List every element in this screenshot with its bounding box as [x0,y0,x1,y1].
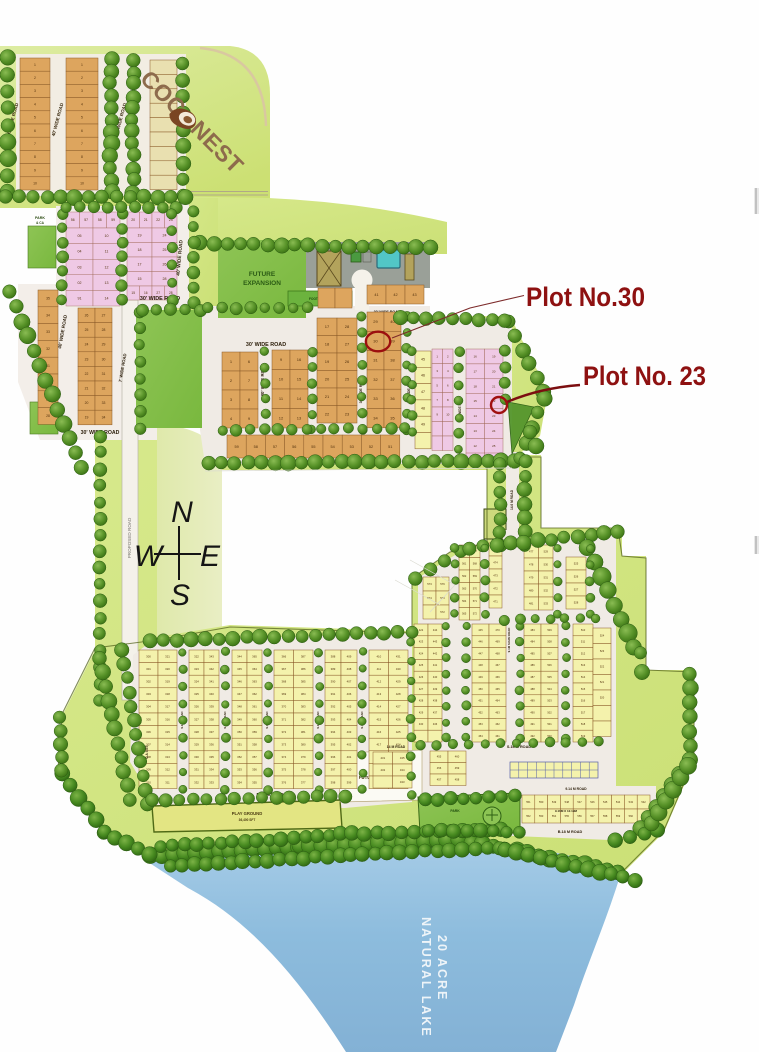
svg-text:428: 428 [396,692,401,696]
svg-text:43: 43 [412,293,416,297]
svg-text:334: 334 [209,768,214,772]
svg-text:410: 410 [376,654,381,658]
svg-text:457: 457 [437,778,442,782]
svg-text:428: 428 [419,699,424,703]
svg-text:456: 456 [437,766,442,770]
svg-text:51: 51 [388,445,392,449]
svg-text:348: 348 [237,705,242,709]
svg-text:58: 58 [98,218,102,222]
svg-text:29: 29 [373,319,378,324]
svg-text:362: 362 [252,692,257,696]
svg-text:18: 18 [138,248,142,252]
svg-text:54: 54 [330,445,334,449]
svg-text:52: 52 [369,445,373,449]
svg-text:576: 576 [440,582,445,586]
svg-text:431: 431 [380,756,385,760]
svg-text:400: 400 [347,768,352,772]
svg-text:426: 426 [419,675,424,679]
svg-text:370: 370 [281,705,286,709]
svg-text:10: 10 [446,412,450,416]
svg-text:3: 3 [34,89,36,93]
svg-text:367: 367 [281,667,286,671]
svg-text:473: 473 [493,573,498,577]
svg-text:S: S [170,579,190,612]
svg-text:PROPOSED ROAD: PROPOSED ROAD [127,517,132,558]
svg-text:318: 318 [165,692,170,696]
svg-text:333: 333 [209,780,214,784]
svg-text:56: 56 [71,218,75,222]
svg-text:423: 423 [419,640,424,644]
svg-text:32: 32 [46,347,50,351]
svg-text:373: 373 [281,743,286,747]
svg-text:483: 483 [530,628,535,632]
svg-text:306: 306 [146,730,151,734]
svg-text:9.16M X 12.19M: 9.16M X 12.19M [555,809,578,813]
svg-text:300: 300 [146,654,151,658]
svg-text:479: 479 [529,575,534,579]
svg-text:32: 32 [373,377,378,382]
svg-text:20: 20 [85,401,89,405]
svg-text:403: 403 [347,730,352,734]
svg-text:459: 459 [455,766,460,770]
svg-text:516: 516 [581,699,586,703]
svg-text:474: 474 [493,560,498,564]
svg-text:347: 347 [237,692,242,696]
svg-text:425: 425 [419,663,424,667]
svg-text:406: 406 [347,692,352,696]
svg-text:380: 380 [301,743,306,747]
svg-text:22: 22 [85,372,89,376]
svg-text:313: 313 [165,755,170,759]
svg-text:36: 36 [390,396,395,401]
svg-text:413: 413 [376,692,381,696]
svg-text:530: 530 [544,562,549,566]
svg-text:327: 327 [194,717,199,721]
svg-text:361: 361 [252,705,257,709]
svg-text:351: 351 [237,743,242,747]
svg-text:19: 19 [138,234,142,238]
svg-text:470: 470 [495,628,500,632]
svg-text:14: 14 [297,396,302,401]
svg-text:478: 478 [529,562,534,566]
svg-text:329: 329 [194,743,199,747]
svg-text:343: 343 [209,654,214,658]
svg-text:469: 469 [495,640,500,644]
svg-text:392: 392 [331,705,336,709]
svg-text:507: 507 [547,651,552,655]
svg-text:555: 555 [565,814,570,818]
svg-text:382: 382 [301,717,306,721]
svg-text:Plot No. 23: Plot No. 23 [583,361,706,391]
svg-text:25: 25 [345,377,350,382]
svg-text:326: 326 [194,705,199,709]
svg-text:461: 461 [495,734,500,738]
svg-text:301: 301 [146,667,151,671]
svg-text:12: 12 [279,416,284,421]
svg-text:402: 402 [347,743,352,747]
svg-text:501: 501 [547,722,552,726]
svg-text:448: 448 [478,663,483,667]
svg-text:37: 37 [390,377,395,382]
svg-text:390: 390 [331,680,336,684]
svg-text:485: 485 [530,651,535,655]
svg-text:5: 5 [81,116,83,120]
svg-text:441: 441 [433,663,438,667]
svg-text:18: 18 [474,384,478,388]
svg-text:531: 531 [544,575,549,579]
svg-text:542: 542 [641,800,646,804]
svg-text:551: 551 [526,800,531,804]
svg-text:W: W [134,540,165,573]
svg-text:E: E [200,540,221,573]
svg-text:425: 425 [396,730,401,734]
svg-text:7: 7 [34,142,36,146]
svg-text:354: 354 [237,780,242,784]
svg-text:560: 560 [629,814,634,818]
svg-text:556: 556 [577,814,582,818]
svg-text:545: 545 [603,800,608,804]
svg-text:515: 515 [581,687,586,691]
svg-text:02: 02 [78,281,82,285]
svg-text:440: 440 [433,675,438,679]
svg-text:434: 434 [400,768,405,772]
svg-text:375: 375 [281,768,286,772]
svg-text:427: 427 [396,705,401,709]
svg-text:21: 21 [325,394,330,399]
svg-text:450: 450 [478,687,483,691]
svg-text:24: 24 [163,234,167,238]
svg-text:472: 472 [493,586,498,590]
svg-text:422: 422 [419,628,424,632]
svg-text:315: 315 [165,730,170,734]
svg-text:521: 521 [600,680,605,684]
svg-text:13: 13 [474,429,478,433]
svg-text:394: 394 [331,730,336,734]
svg-text:504: 504 [547,687,552,691]
svg-text:9: 9 [81,168,83,172]
svg-text:34: 34 [102,416,106,420]
svg-text:20: 20 [325,377,330,382]
svg-text:444: 444 [433,628,438,632]
svg-text:55: 55 [311,445,315,449]
svg-text:17: 17 [325,324,330,329]
svg-text:525: 525 [574,561,579,565]
svg-text:20: 20 [131,218,135,222]
svg-text:505: 505 [547,675,552,679]
svg-text:548: 548 [565,800,570,804]
svg-text:460: 460 [455,755,460,759]
svg-text:15: 15 [474,399,478,403]
svg-text:9.14 M ROAD: 9.14 M ROAD [565,787,587,791]
svg-text:492: 492 [530,734,535,738]
svg-text:342: 342 [209,667,214,671]
svg-text:26: 26 [163,263,167,267]
svg-text:550: 550 [539,800,544,804]
svg-text:22: 22 [325,412,330,417]
svg-text:31: 31 [373,358,378,363]
svg-text:455: 455 [437,755,442,759]
svg-text:13: 13 [297,416,302,421]
svg-text:360: 360 [252,717,257,721]
svg-text:523: 523 [600,649,605,653]
svg-text:EXPANSION: EXPANSION [243,280,281,287]
svg-text:23: 23 [492,414,496,418]
svg-text:558: 558 [603,814,608,818]
svg-text:312: 312 [165,768,170,772]
svg-text:429: 429 [419,710,424,714]
svg-text:522: 522 [600,665,605,669]
svg-text:15: 15 [131,291,135,295]
svg-text:56: 56 [292,445,296,449]
svg-text:34: 34 [46,313,50,317]
svg-text:17: 17 [474,369,478,373]
svg-text:353: 353 [237,768,242,772]
svg-text:2: 2 [34,76,36,80]
svg-text:21: 21 [85,387,89,391]
svg-text:365: 365 [252,654,257,658]
svg-text:404: 404 [347,717,352,721]
svg-text:25: 25 [492,444,496,448]
svg-text:17: 17 [138,263,142,267]
svg-text:19: 19 [492,355,496,359]
svg-text:357: 357 [252,755,257,759]
svg-text:45: 45 [421,357,425,361]
svg-text:336: 336 [209,743,214,747]
svg-text:407: 407 [347,680,352,684]
svg-text:NATURAL LAKE: NATURAL LAKE [419,917,433,1038]
svg-text:376: 376 [281,780,286,784]
svg-text:401: 401 [347,755,352,759]
svg-text:471: 471 [493,599,498,603]
svg-text:570: 570 [473,588,478,591]
svg-text:395: 395 [331,743,336,747]
svg-text:468: 468 [495,651,500,655]
svg-text:429: 429 [396,680,401,684]
svg-text:339: 339 [209,705,214,709]
svg-text:573: 573 [427,582,432,586]
svg-text:16: 16 [144,291,148,295]
svg-text:544: 544 [616,800,621,804]
svg-text:543: 543 [629,800,634,804]
svg-text:314: 314 [165,743,170,747]
svg-text:398: 398 [331,780,336,784]
svg-text:435: 435 [400,756,405,760]
svg-text:564: 564 [462,600,467,603]
svg-text:34: 34 [373,416,378,421]
svg-text:366: 366 [281,654,286,658]
svg-text:350: 350 [237,730,242,734]
svg-text:502: 502 [547,710,552,714]
svg-text:416: 416 [376,730,381,734]
svg-text:424: 424 [419,651,424,655]
svg-text:374: 374 [281,755,286,759]
svg-text:345: 345 [237,667,242,671]
svg-text:464: 464 [495,699,500,703]
svg-text:533: 533 [544,601,549,605]
svg-text:27: 27 [345,342,350,347]
svg-text:3: 3 [81,89,83,93]
svg-text:35: 35 [390,416,395,421]
svg-text:399: 399 [347,780,352,784]
svg-text:22: 22 [156,218,160,222]
svg-text:21: 21 [144,218,148,222]
svg-text:335: 335 [209,755,214,759]
svg-text:58: 58 [254,445,258,449]
svg-text:387: 387 [301,654,306,658]
svg-text:430: 430 [396,667,401,671]
svg-text:557: 557 [590,814,595,818]
svg-text:511: 511 [581,640,586,644]
svg-text:463: 463 [495,710,500,714]
svg-text:05: 05 [78,234,82,238]
svg-text:PLAY GROUND: PLAY GROUND [232,811,262,816]
svg-text:13: 13 [105,281,109,285]
svg-text:378: 378 [301,768,306,772]
svg-text:41: 41 [374,293,378,297]
svg-text:554: 554 [552,814,557,818]
svg-text:30: 30 [373,338,378,343]
svg-text:480: 480 [529,588,534,592]
svg-text:510: 510 [581,628,586,632]
svg-text:25: 25 [163,248,167,252]
svg-text:383: 383 [301,705,306,709]
svg-text:322: 322 [194,654,199,658]
svg-text:411: 411 [377,667,382,671]
svg-text:559: 559 [616,814,621,818]
svg-text:449: 449 [478,675,483,679]
svg-text:24: 24 [345,394,350,399]
svg-text:454: 454 [478,734,483,738]
svg-text:5: 5 [34,116,36,120]
svg-text:303: 303 [146,692,151,696]
svg-text:477: 477 [529,549,534,553]
svg-text:346: 346 [237,680,242,684]
svg-text:328: 328 [194,730,199,734]
svg-text:33: 33 [373,396,378,401]
svg-text:527: 527 [574,587,579,591]
svg-text:415: 415 [376,717,381,721]
svg-text:453: 453 [478,722,483,726]
svg-text:446: 446 [478,640,483,644]
svg-text:529: 529 [544,549,549,553]
svg-text:04: 04 [78,250,82,254]
svg-text:325: 325 [194,692,199,696]
svg-text:528: 528 [574,600,579,604]
svg-text:572: 572 [440,610,445,614]
svg-text:547: 547 [577,800,582,804]
svg-text:7: 7 [81,142,83,146]
svg-text:386: 386 [301,667,306,671]
svg-text:524: 524 [600,634,605,638]
svg-text:28: 28 [46,414,50,418]
svg-text:46: 46 [421,374,425,378]
svg-text:562: 562 [462,575,467,578]
svg-text:319: 319 [165,680,170,684]
svg-text:436: 436 [433,722,438,726]
svg-text:451: 451 [478,699,483,703]
svg-text:29: 29 [102,343,106,347]
svg-text:358: 358 [252,743,257,747]
svg-text:445: 445 [478,628,483,632]
svg-text:320: 320 [165,667,170,671]
svg-text:30: 30 [102,357,106,361]
svg-text:518: 518 [581,722,586,726]
svg-text:405: 405 [347,705,352,709]
svg-text:23: 23 [345,412,350,417]
svg-text:28: 28 [102,328,106,332]
svg-text:458: 458 [455,778,460,782]
svg-text:14: 14 [474,414,478,418]
svg-text:& CA: & CA [36,221,44,225]
svg-text:517: 517 [581,710,586,714]
svg-text:8: 8 [81,155,83,159]
svg-text:393: 393 [331,717,336,721]
svg-text:28: 28 [345,324,350,329]
svg-text:24: 24 [492,429,496,433]
svg-text:33: 33 [46,330,50,334]
svg-text:426: 426 [396,717,401,721]
svg-text:23: 23 [85,357,89,361]
svg-text:4: 4 [34,102,36,106]
svg-text:10: 10 [105,234,109,238]
svg-text:491: 491 [530,722,535,726]
svg-text:323: 323 [194,667,199,671]
svg-text:19: 19 [325,359,330,364]
svg-text:571: 571 [473,600,478,603]
svg-text:26: 26 [85,314,89,318]
svg-text:431: 431 [396,654,401,658]
svg-text:8: 8 [34,155,36,159]
svg-text:384: 384 [301,692,306,696]
svg-text:364: 364 [252,667,257,671]
svg-text:9.1M MAIN ROAD: 9.1M MAIN ROAD [507,627,511,653]
svg-text:466: 466 [495,675,500,679]
svg-text:324: 324 [194,680,199,684]
svg-text:38: 38 [390,358,395,363]
svg-text:341: 341 [209,680,214,684]
svg-text:14 M ROAD: 14 M ROAD [387,745,406,749]
svg-text:519: 519 [581,734,586,738]
svg-text:432: 432 [380,768,385,772]
svg-text:462: 462 [495,722,500,726]
svg-text:57: 57 [84,218,88,222]
svg-text:27: 27 [102,314,106,318]
svg-text:321: 321 [165,654,170,658]
svg-text:49: 49 [421,423,425,427]
svg-text:1: 1 [81,63,83,67]
svg-text:439: 439 [433,687,438,691]
svg-text:372: 372 [281,730,286,734]
svg-text:20 ACRE: 20 ACRE [435,935,449,1001]
svg-text:503: 503 [547,699,552,703]
svg-text:412: 412 [376,680,381,684]
svg-text:18: 18 [325,342,330,347]
svg-text:356: 356 [252,768,257,772]
svg-text:409: 409 [347,654,352,658]
svg-text:355: 355 [252,780,257,784]
svg-text:487: 487 [530,675,535,679]
svg-text:12: 12 [105,265,109,269]
svg-text:486: 486 [530,663,535,667]
svg-text:304: 304 [146,705,151,709]
svg-text:568: 568 [473,563,478,566]
svg-text:317: 317 [165,705,170,709]
svg-text:PARK: PARK [35,216,45,220]
svg-text:552: 552 [526,814,531,818]
svg-text:36,400 SFT: 36,400 SFT [239,818,256,822]
svg-text:26: 26 [345,359,350,364]
svg-text:513: 513 [581,663,586,667]
